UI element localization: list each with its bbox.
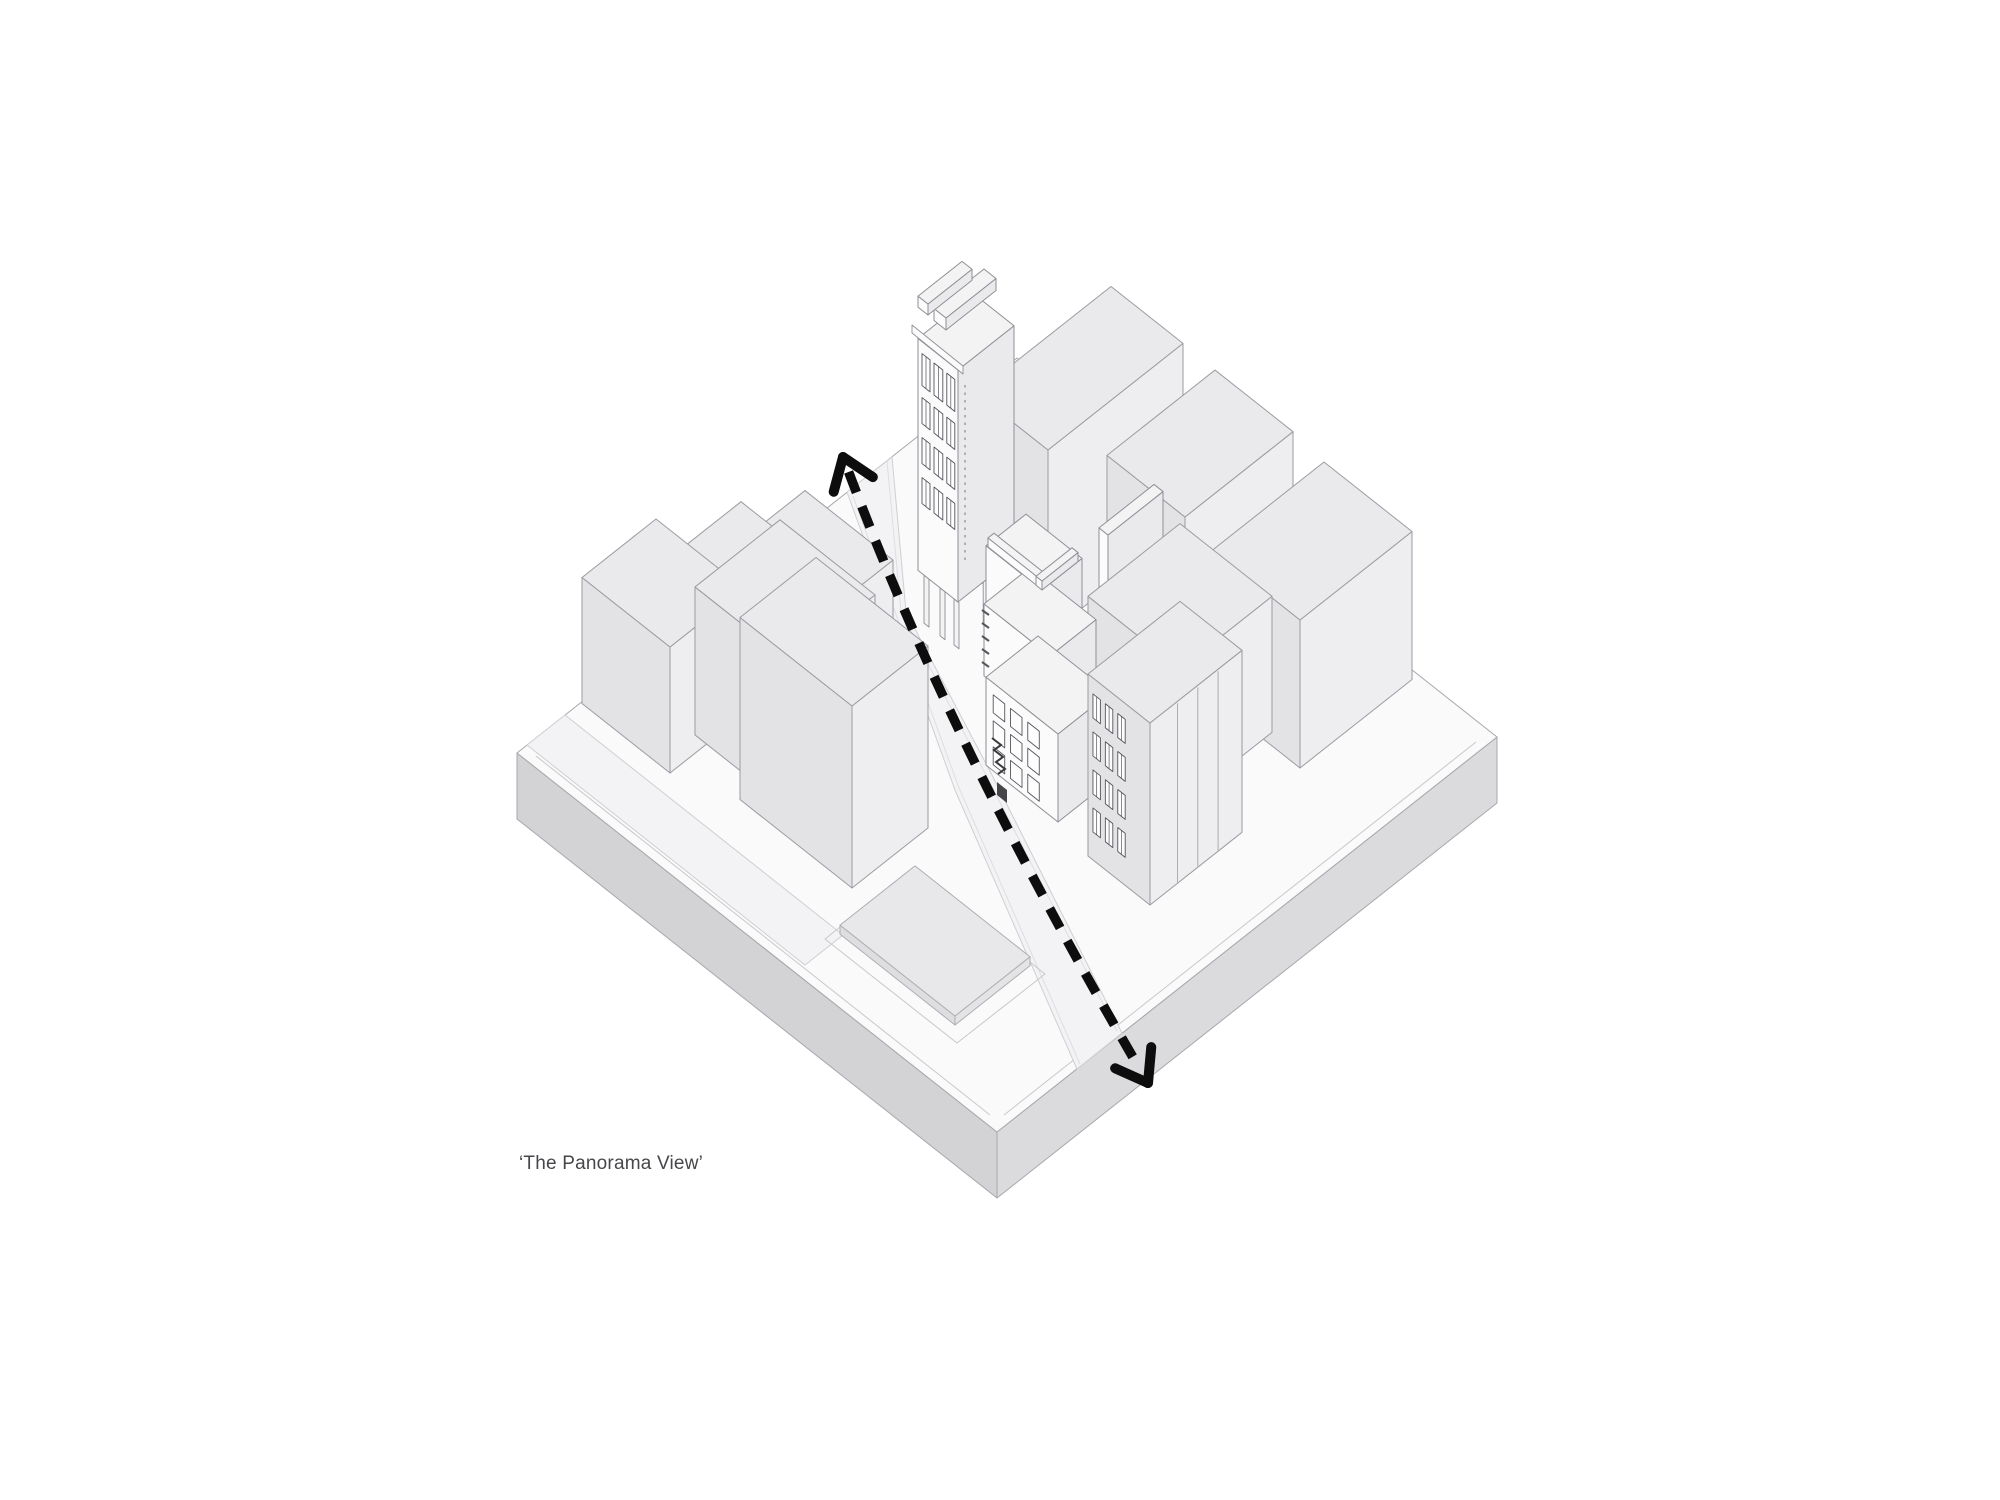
page-canvas: ‘The Panorama View’ (0, 0, 2000, 1500)
piloti-column (924, 575, 929, 627)
diagram-caption: ‘The Panorama View’ (519, 1153, 703, 1175)
panorama-diagram-svg (0, 0, 2000, 1500)
piloti-column (940, 588, 945, 640)
piloti-column (954, 599, 959, 649)
arrowhead (834, 457, 843, 492)
axonometric-site-diagram: ‘The Panorama View’ (0, 0, 2000, 1500)
arrowhead (1148, 1047, 1151, 1083)
